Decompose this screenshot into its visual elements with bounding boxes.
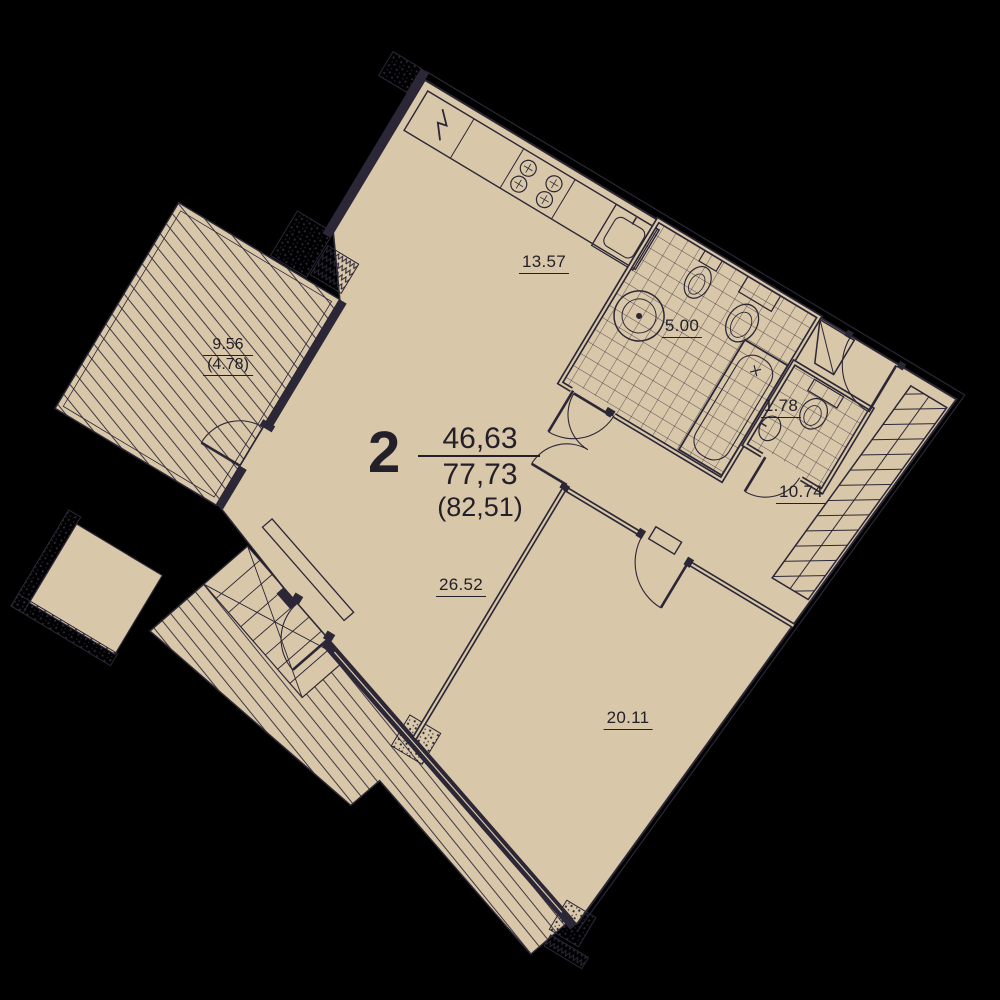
- terrace-area-label: 9.56 (4.78): [203, 336, 253, 376]
- rooms-count: 2: [368, 424, 400, 482]
- kitchen-area-label: 13.57: [519, 252, 569, 274]
- living-room-area-label: 26.52: [436, 575, 486, 597]
- apartment-summary: 2 46,63 77,73 (82,51): [370, 408, 540, 528]
- bedroom-area-label: 20.11: [604, 708, 653, 730]
- total-area-value: 77,73: [420, 458, 540, 492]
- floor-plan-page: 13.57 5.00 1.78 10.74 26.52 20.11 9.56 (…: [0, 0, 1000, 1000]
- bathroom-area-label: 5.00: [662, 316, 702, 338]
- hallway-area-label: 10.74: [776, 482, 826, 504]
- total-area-with-summer-value: (82,51): [410, 492, 550, 523]
- living-area-value: 46,63: [420, 422, 540, 456]
- wc-area-label: 1.78: [761, 396, 801, 418]
- fraction-bar: [418, 455, 540, 457]
